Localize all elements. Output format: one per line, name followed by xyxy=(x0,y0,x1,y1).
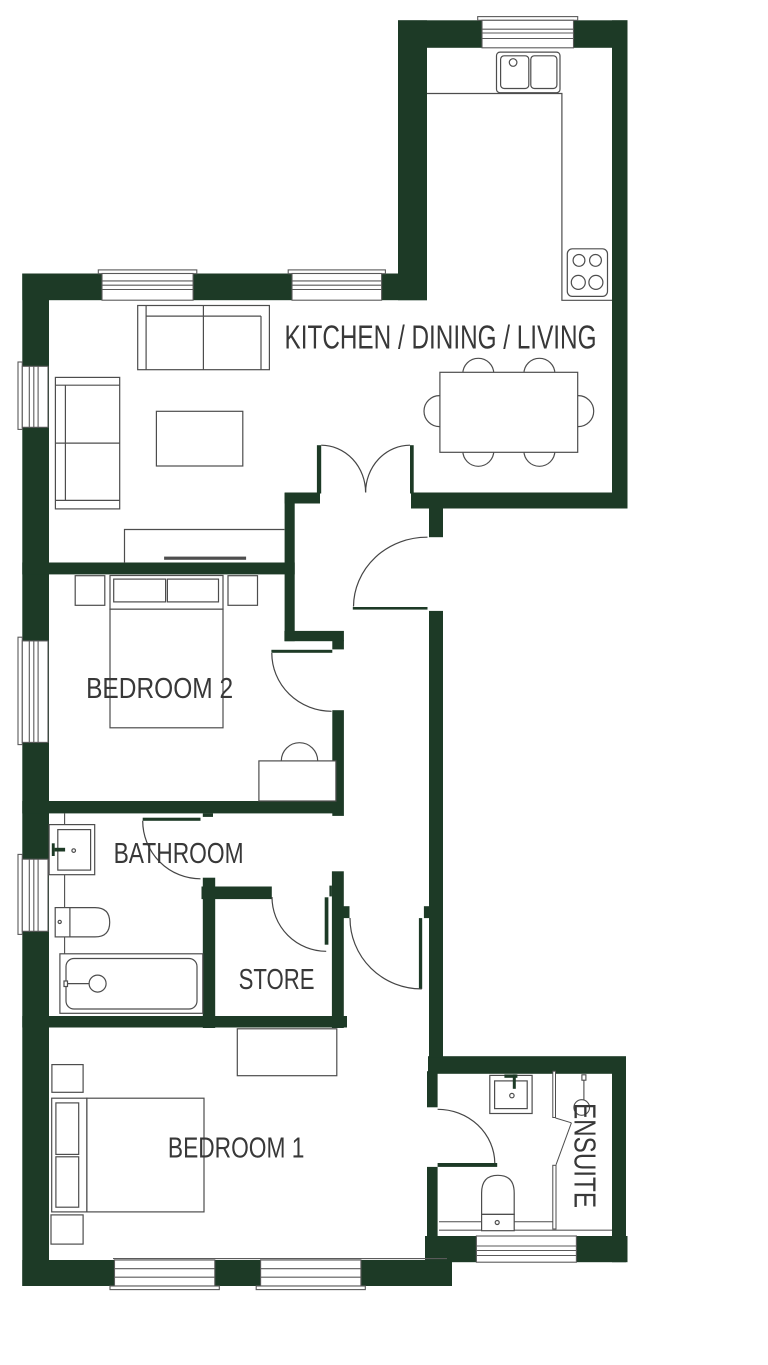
svg-text:BATHROOM: BATHROOM xyxy=(114,838,244,870)
svg-text:BEDROOM 1: BEDROOM 1 xyxy=(168,1133,305,1165)
svg-text:BEDROOM 2: BEDROOM 2 xyxy=(86,673,233,705)
svg-text:STORE: STORE xyxy=(239,964,315,996)
svg-text:ENSUITE: ENSUITE xyxy=(568,1103,603,1208)
svg-text:KITCHEN / DINING / LIVING: KITCHEN / DINING / LIVING xyxy=(285,318,597,355)
